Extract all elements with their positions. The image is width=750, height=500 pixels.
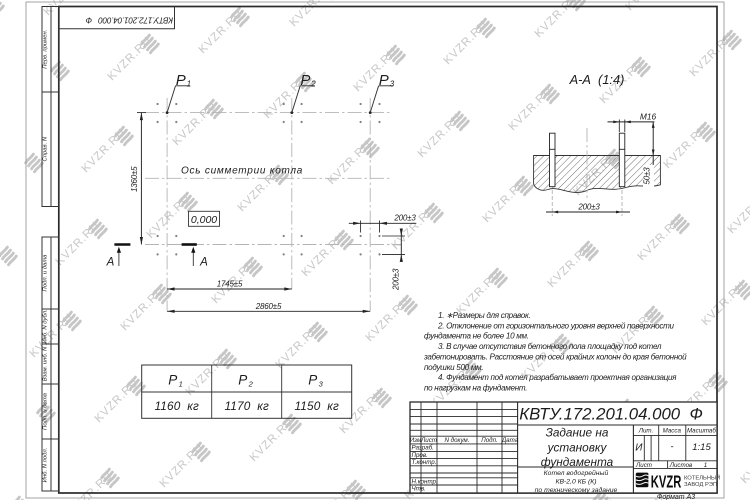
svg-text:ЗАВОД РЭП: ЗАВОД РЭП: [684, 482, 717, 488]
svg-text:Лист: Лист: [420, 437, 437, 444]
svg-text:2: 2: [310, 80, 316, 89]
svg-text:3. В случае отсутствия бет: 3. В случае отсутствия бетонного пола пл…: [438, 342, 662, 351]
svg-text:KVZR.RU: KVZR.RU: [662, 122, 711, 171]
svg-text:200±3: 200±3: [392, 268, 401, 291]
svg-text:KVZR.RU: KVZR.RU: [739, 437, 750, 486]
svg-text:KVZR.RU: KVZR.RU: [364, 295, 413, 344]
svg-text:KVZR.RU: KVZR.RU: [106, 34, 155, 83]
svg-text:Справ. N: Справ. N: [43, 136, 49, 161]
svg-text:КВТУ.172.201.04.000 Ф: КВТУ.172.201.04.000 Ф: [85, 16, 173, 25]
svg-text:P: P: [379, 72, 389, 89]
svg-text:1150 кг: 1150 кг: [294, 399, 339, 413]
svg-text:Взам. инб. N: Взам. инб. N: [43, 346, 49, 381]
svg-text:1745±5: 1745±5: [217, 280, 243, 289]
svg-text:P: P: [308, 373, 317, 388]
svg-text:KVZR.RU: KVZR.RU: [288, 0, 337, 29]
svg-text:N докум.: N докум.: [444, 437, 469, 444]
svg-text:по нагрузкам на фундамент.: по нагрузкам на фундамент.: [424, 384, 527, 393]
svg-text:Формат А3: Формат А3: [657, 494, 695, 500]
svg-text:KVZR.RU: KVZR.RU: [442, 18, 491, 67]
svg-text:KVZR.RU: KVZR.RU: [54, 219, 103, 268]
svg-text:KVZR.RU: KVZR.RU: [338, 387, 387, 436]
svg-text:KVZR.RU: KVZR.RU: [28, 311, 77, 360]
svg-text:KVZR.RU: KVZR.RU: [300, 230, 349, 279]
svg-text:P: P: [300, 72, 310, 89]
svg-text:Подп. и дата: Подп. и дата: [43, 254, 49, 292]
svg-text:Перв. примен.: Перв. примен.: [43, 30, 49, 69]
svg-text:1170 кг: 1170 кг: [224, 399, 269, 413]
svg-text:KVZR.RU: KVZR.RU: [158, 441, 207, 490]
svg-text:4. Фундамент под котел раз: 4. Фундамент под котел разрабатывает про…: [438, 373, 677, 382]
svg-text:3: 3: [390, 80, 395, 89]
svg-text:КОТЕЛЬНЫЙ: КОТЕЛЬНЫЙ: [684, 474, 720, 482]
svg-text:Ось симметрии котла: Ось симметрии котла: [181, 166, 303, 177]
svg-text:А-А (1:4): А-А (1:4): [569, 72, 625, 87]
svg-text:KVZR.RU: KVZR.RU: [80, 126, 129, 175]
svg-text:фундамента не более 10 мм.: фундамента не более 10 мм.: [424, 332, 529, 341]
svg-text:Листов: Листов: [669, 462, 693, 469]
svg-text:KVZR.RU: KVZR.RU: [726, 187, 750, 236]
svg-text:KVZR.RU: KVZR.RU: [326, 138, 375, 187]
svg-text:Лист: Лист: [635, 462, 652, 469]
svg-text:2: 2: [248, 380, 254, 389]
svg-text:Пров.: Пров.: [412, 452, 428, 459]
svg-text:Масштаб: Масштаб: [687, 428, 716, 435]
svg-text:М16: М16: [640, 111, 657, 121]
svg-text:1160 кг: 1160 кг: [154, 399, 199, 413]
svg-text:Инб. N подл.: Инб. N подл.: [43, 448, 49, 483]
svg-text:P: P: [238, 373, 247, 388]
svg-text:50±3: 50±3: [643, 167, 652, 185]
svg-text:200±3: 200±3: [577, 203, 600, 212]
svg-text:А: А: [199, 257, 208, 269]
svg-text:забетонировать. Расстояние о: забетонировать. Расстояние от осей крайн…: [423, 352, 687, 361]
svg-text:1. ∗Размеры для справок.: 1. ∗Размеры для справок.: [438, 311, 531, 320]
svg-text:Инб. N дубл.: Инб. N дубл.: [43, 309, 49, 343]
svg-text:Подп. и дата: Подп. и дата: [43, 392, 49, 430]
svg-text:1: 1: [704, 462, 707, 469]
svg-text:0,000: 0,000: [191, 214, 217, 226]
svg-text:Разраб.: Разраб.: [412, 445, 434, 452]
svg-text:3: 3: [319, 380, 324, 389]
svg-text:Чтв.: Чтв.: [412, 486, 426, 493]
svg-text:200±3: 200±3: [393, 214, 416, 223]
svg-text:P: P: [176, 72, 186, 89]
svg-text:подушки 500 мм.: подушки 500 мм.: [424, 363, 483, 372]
svg-text:Дата: Дата: [501, 437, 519, 444]
svg-text:-: -: [671, 442, 674, 452]
svg-text:KVZR.RU: KVZR.RU: [42, 0, 91, 18]
svg-text:Масса: Масса: [663, 428, 682, 435]
svg-text:Т.контр.: Т.контр.: [412, 459, 437, 466]
svg-text:KVZR: KVZR: [651, 472, 682, 492]
svg-text:1:15: 1:15: [692, 442, 711, 453]
svg-text:P: P: [168, 373, 177, 388]
svg-text:2860±5: 2860±5: [255, 302, 282, 311]
svg-text:Подп.: Подп.: [481, 437, 497, 444]
svg-text:Задание на: Задание на: [546, 426, 609, 440]
svg-text:установку: установку: [547, 441, 608, 455]
svg-text:И: И: [635, 443, 643, 454]
svg-text:Н.контр.: Н.контр.: [412, 478, 438, 485]
svg-text:Лит.: Лит.: [638, 428, 654, 435]
svg-text:2. Отклонение от горизонтал: 2. Отклонение от горизонтального уровня …: [437, 321, 675, 330]
svg-text:1: 1: [179, 380, 183, 389]
svg-text:А: А: [106, 257, 115, 269]
svg-text:KVZR.RU: KVZR.RU: [416, 111, 465, 160]
svg-text:Котел водогрейный: Котел водогрейный: [544, 469, 609, 477]
svg-text:КВ-2,0 КБ (К): КВ-2,0 КБ (К): [556, 478, 597, 485]
svg-text:KVZR.RU: KVZR.RU: [636, 214, 685, 263]
svg-text:фундамента: фундамента: [541, 455, 614, 469]
svg-text:по техническому задание: по техническому задание: [535, 486, 618, 494]
svg-text:КВТУ.172.201.04.000 Ф: КВТУ.172.201.04.000 Ф: [519, 405, 703, 424]
svg-text:1: 1: [187, 80, 191, 89]
svg-text:1360±5: 1360±5: [130, 166, 139, 192]
svg-text:KVZR.RU: KVZR.RU: [274, 322, 323, 371]
svg-text:KVZR.RU: KVZR.RU: [688, 30, 737, 79]
